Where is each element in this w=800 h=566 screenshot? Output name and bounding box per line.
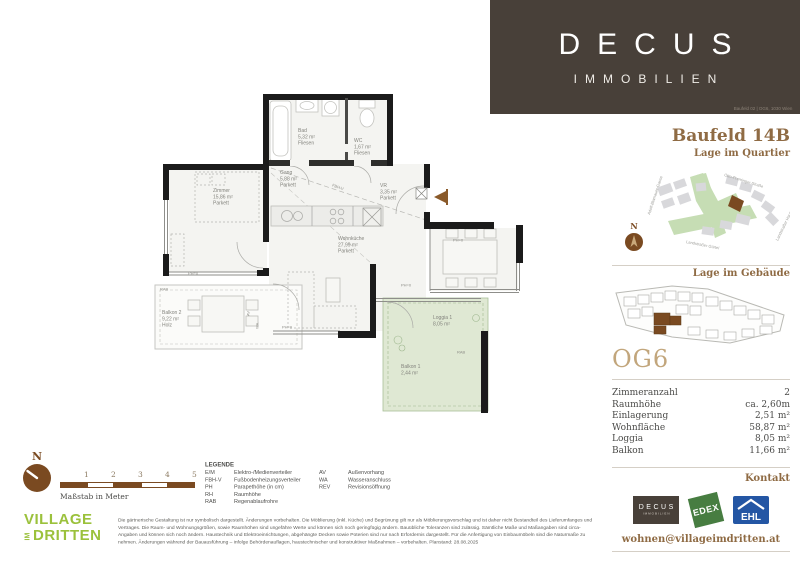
section-quartier-label: Lage im Quartier bbox=[612, 148, 790, 159]
room-label-loggia1: Loggia 18,05 m² bbox=[433, 315, 452, 328]
edex-logo: EDEX bbox=[688, 492, 724, 528]
scale-bar-segments bbox=[60, 482, 200, 488]
decus-logo-text: DECUS bbox=[639, 504, 676, 511]
detail-label: Raumhöhe bbox=[612, 400, 661, 412]
legend-abbr: PH bbox=[205, 484, 234, 491]
room-label-zimmer: Zimmer15,86 m²Parkett bbox=[213, 188, 233, 207]
room-label-balkon1: Balkon 12,44 m² bbox=[401, 364, 420, 377]
building-location-svg bbox=[612, 283, 790, 347]
detail-value: 2,51 m² bbox=[755, 411, 790, 423]
detail-label: Balkon bbox=[612, 446, 644, 458]
legend-column-1: E/MElektro-/Medienverteiler FBH-VFußbode… bbox=[205, 469, 301, 505]
partner-logos: DECUS IMMOBILIEN EDEX EHL bbox=[612, 492, 790, 528]
table-row: Einlagerung 2,51 m² bbox=[612, 411, 790, 423]
annotation-rab: RAB bbox=[160, 287, 168, 292]
annotation-ph: PH=0 bbox=[282, 325, 292, 330]
detail-label: Einlagerung bbox=[612, 411, 668, 423]
scale-tick: 1 bbox=[84, 470, 89, 479]
compass-icon bbox=[624, 232, 644, 252]
village-logo-line2: DRITTEN bbox=[33, 528, 102, 544]
scale-tick: 5 bbox=[192, 470, 197, 479]
table-row: Raumhöhe ca. 2,60m bbox=[612, 400, 790, 412]
detail-label: Loggia bbox=[612, 434, 643, 446]
detail-label: Wohnfläche bbox=[612, 423, 665, 435]
compass-north-label: N bbox=[32, 450, 62, 463]
disclaimer: Die gärtnerische Gestaltung ist nur symb… bbox=[118, 517, 600, 561]
contact-email[interactable]: wohnen@villageimdritten.at bbox=[612, 534, 790, 545]
brand-header: DECUS IMMOBILIEN Baufeld 02 | OG6, 1030 … bbox=[490, 0, 800, 114]
legend-text: Wasseranschluss bbox=[348, 476, 391, 483]
table-row: Zimmeranzahl 2 bbox=[612, 388, 790, 400]
legend-column-2: AVAußenvorhang WAWasseranschluss REVRevi… bbox=[319, 469, 391, 491]
annotation-ph: PH=0 bbox=[188, 271, 198, 276]
legend-text: Fußbodenheizungsverteiler bbox=[234, 476, 301, 483]
legend-text: Parapethöhe (in cm) bbox=[234, 484, 284, 491]
brand-wordmark: DECUS bbox=[490, 28, 800, 62]
brand-subtitle: IMMOBILIEN bbox=[490, 72, 800, 86]
divider bbox=[612, 551, 790, 552]
annotation-ph: PH=0 bbox=[401, 283, 411, 288]
room-label-vr: VR3,35 m²Parkett bbox=[380, 183, 397, 202]
table-row: Wohnfläche 58,87 m² bbox=[612, 423, 790, 435]
legend-abbr: FBH-V bbox=[205, 476, 234, 483]
room-label-balkon2: Balkon 29,22 m²Holz bbox=[162, 310, 181, 329]
village-logo-line1: VILLAGE bbox=[24, 512, 102, 528]
divider bbox=[612, 379, 790, 380]
legend-text: Regenablaufrohre bbox=[234, 498, 278, 505]
edex-logo-text: EDEX bbox=[692, 502, 720, 518]
detail-value: ca. 2,60m bbox=[745, 400, 790, 412]
unit-details-table: Zimmeranzahl 2 Raumhöhe ca. 2,60m Einlag… bbox=[612, 388, 790, 457]
divider bbox=[612, 265, 790, 266]
annotation-ph: PH=0 bbox=[453, 238, 463, 243]
room-label-gang: Gang5,88 m²Parkett bbox=[280, 170, 297, 189]
annotation-av: AV bbox=[246, 311, 251, 316]
scale-tick: 4 bbox=[165, 470, 170, 479]
decus-logo: DECUS IMMOBILIEN bbox=[633, 496, 679, 524]
floor-plan-drawing bbox=[140, 88, 540, 433]
scale-bar: 1 2 3 4 5 Maßstab in Meter bbox=[60, 470, 200, 504]
page-title: Baufeld 14B bbox=[612, 126, 790, 146]
legend-text: Raumhöhe bbox=[234, 491, 261, 498]
scale-tick: 2 bbox=[111, 470, 116, 479]
disclaimer-text: Die gärtnerische Gestaltung ist nur symb… bbox=[118, 517, 600, 546]
legend-abbr: RH bbox=[205, 491, 234, 498]
room-label-bad: Bad5,32 m²Fliesen bbox=[298, 128, 315, 147]
ehl-logo: EHL bbox=[733, 496, 769, 524]
table-row: Balkon 11,66 m² bbox=[612, 446, 790, 458]
ehl-logo-text: EHL bbox=[741, 512, 761, 523]
decus-logo-subtext: IMMOBILIEN bbox=[643, 512, 671, 515]
legend-title: LEGENDE bbox=[205, 461, 605, 468]
scale-tick: 3 bbox=[138, 470, 143, 479]
legend-abbr: RAB bbox=[205, 498, 234, 505]
street-label: Landstraßer Gürtel bbox=[686, 239, 720, 250]
section-gebaeude-label: Lage im Gebäude bbox=[612, 268, 790, 279]
detail-value: 11,66 m² bbox=[749, 446, 790, 458]
map-compass: N bbox=[622, 221, 646, 257]
plan-compass: N bbox=[22, 450, 62, 498]
village-logo-im: IM bbox=[21, 532, 37, 541]
compass-icon bbox=[22, 463, 52, 493]
legend: LEGENDE E/MElektro-/Medienverteiler FBH-… bbox=[205, 461, 605, 517]
detail-value: 8,05 m² bbox=[755, 434, 790, 446]
quartier-map: Otto-Preminger-Straße Adolf-Blamauer-Gas… bbox=[612, 163, 790, 259]
brand-address: Baufeld 02 | OG6, 1030 Wien bbox=[733, 106, 792, 111]
scale-caption: Maßstab in Meter bbox=[60, 492, 200, 501]
legend-text: Außenvorhang bbox=[348, 469, 384, 476]
table-row: Loggia 8,05 m² bbox=[612, 434, 790, 446]
detail-value: 2 bbox=[784, 388, 790, 400]
annotation-rab: RAB bbox=[457, 350, 465, 355]
legend-abbr: WA bbox=[319, 476, 348, 483]
legend-text: Elektro-/Medienverteiler bbox=[234, 469, 292, 476]
sidebar: Baufeld 14B Lage im Quartier bbox=[612, 118, 790, 566]
room-label-wc: WC1,67 m²Fliesen bbox=[354, 138, 371, 157]
divider bbox=[612, 467, 790, 468]
legend-abbr: AV bbox=[319, 469, 348, 476]
detail-label: Zimmeranzahl bbox=[612, 388, 678, 400]
legend-text: Revisionsöffnung bbox=[348, 484, 390, 491]
compass-north-label: N bbox=[622, 221, 646, 231]
scale-numbers: 1 2 3 4 5 bbox=[60, 470, 200, 480]
floorplan-page: Bad5,32 m²Fliesen WC1,67 m²Fliesen Gang5… bbox=[0, 0, 800, 566]
legend-abbr: REV bbox=[319, 484, 348, 491]
floor-label: OG6 bbox=[612, 345, 790, 373]
detail-value: 58,87 m² bbox=[749, 423, 790, 435]
room-label-wohnkueche: Wohnküche27,99 m²Parkett bbox=[338, 236, 364, 255]
legend-abbr: E/M bbox=[205, 469, 234, 476]
floor-plan: Bad5,32 m²Fliesen WC1,67 m²Fliesen Gang5… bbox=[140, 88, 540, 433]
quartier-map-svg: Otto-Preminger-Straße Adolf-Blamauer-Gas… bbox=[640, 163, 790, 255]
kontakt-label: Kontakt bbox=[612, 473, 790, 484]
village-im-dritten-logo: VILLAGE IM DRITTEN bbox=[24, 512, 102, 544]
annotation-wa: WA bbox=[255, 323, 260, 329]
